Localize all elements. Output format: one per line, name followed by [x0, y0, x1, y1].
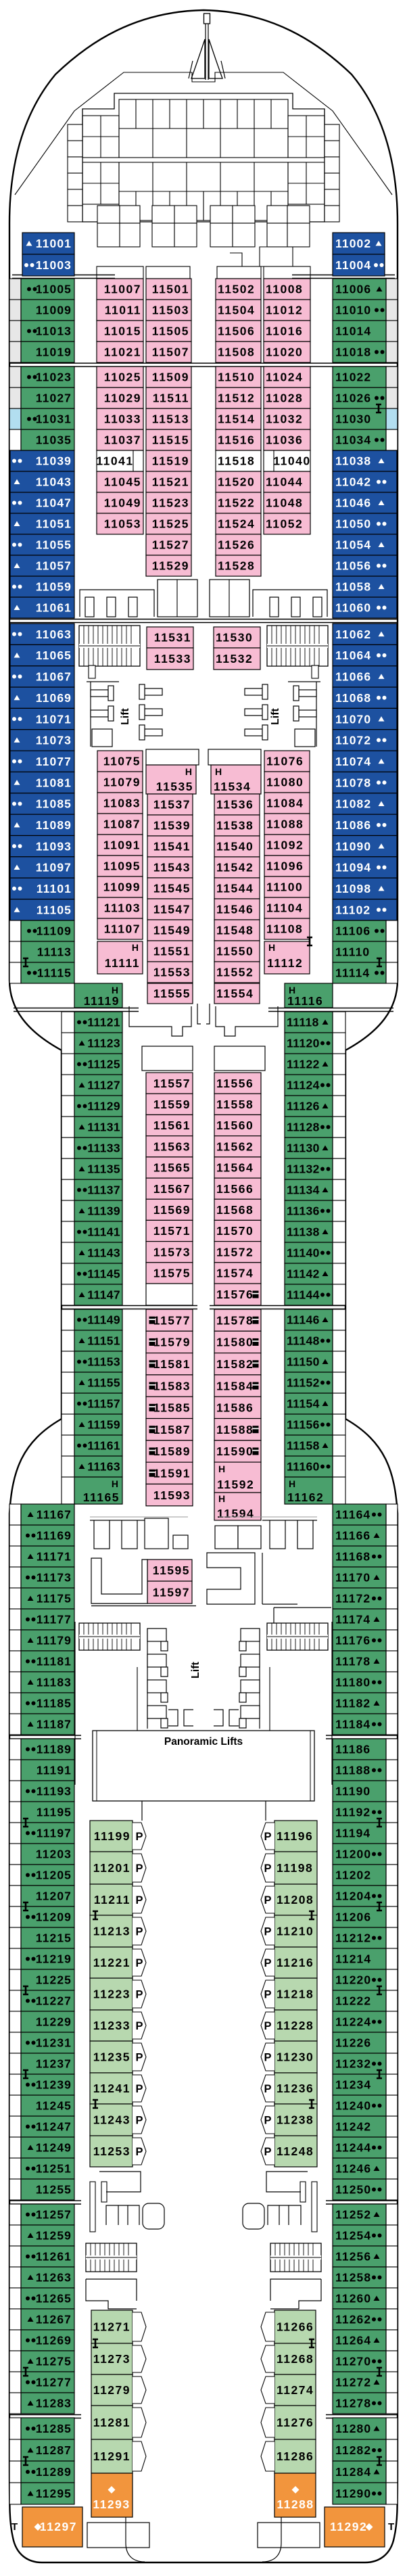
svg-text:11529: 11529 [152, 559, 189, 573]
svg-text:11115: 11115 [37, 966, 72, 980]
svg-text:11166: 11166 [335, 1529, 370, 1543]
svg-text:P: P [135, 2146, 143, 2158]
svg-text:11159: 11159 [87, 1418, 120, 1432]
svg-text:11266: 11266 [277, 2320, 314, 2334]
svg-text:11172: 11172 [335, 1592, 370, 1606]
svg-text:11565: 11565 [153, 1161, 191, 1175]
svg-text:11261: 11261 [36, 2250, 72, 2264]
svg-text:Lift: Lift [190, 1661, 201, 1679]
svg-text:11168: 11168 [335, 1550, 370, 1564]
svg-text:11216: 11216 [277, 1956, 314, 1969]
svg-text:P: P [264, 2052, 271, 2064]
svg-text:11555: 11555 [153, 987, 191, 1000]
svg-text:11594: 11594 [217, 1507, 254, 1520]
svg-text:11149: 11149 [87, 1313, 120, 1327]
svg-text:11119: 11119 [84, 994, 120, 1008]
svg-text:11186: 11186 [335, 1743, 370, 1756]
svg-text:P: P [135, 1863, 143, 1875]
svg-text:11516: 11516 [218, 434, 255, 447]
svg-text:11588: 11588 [216, 1423, 254, 1436]
svg-text:11269: 11269 [36, 2334, 72, 2347]
svg-text:11069: 11069 [36, 691, 72, 705]
svg-text:11021: 11021 [104, 346, 141, 359]
svg-text:11127: 11127 [87, 1079, 120, 1092]
svg-text:11556: 11556 [216, 1077, 254, 1090]
svg-text:11287: 11287 [36, 2443, 72, 2457]
svg-text:11563: 11563 [153, 1140, 191, 1153]
svg-text:11554: 11554 [216, 987, 254, 1000]
svg-text:11206: 11206 [335, 1911, 371, 1924]
svg-text:11559: 11559 [153, 1098, 191, 1111]
svg-text:11562: 11562 [216, 1140, 254, 1153]
svg-text:11002: 11002 [335, 237, 371, 250]
svg-text:11029: 11029 [104, 392, 141, 405]
svg-text:11121: 11121 [87, 1016, 120, 1029]
svg-text:11031: 11031 [36, 413, 72, 426]
svg-text:P: P [135, 2115, 143, 2127]
svg-text:11004: 11004 [335, 258, 371, 272]
svg-text:11084: 11084 [266, 797, 304, 810]
svg-text:11160: 11160 [287, 1460, 320, 1474]
svg-text:11026: 11026 [335, 392, 371, 405]
svg-text:11215: 11215 [36, 1931, 72, 1945]
svg-text:11007: 11007 [104, 283, 141, 296]
svg-text:11597: 11597 [153, 1586, 190, 1599]
svg-text:11558: 11558 [216, 1098, 254, 1111]
svg-text:11561: 11561 [153, 1119, 191, 1132]
svg-text:11175: 11175 [37, 1592, 72, 1606]
svg-text:11005: 11005 [36, 283, 72, 296]
svg-text:11540: 11540 [216, 840, 254, 853]
svg-text:11170: 11170 [335, 1571, 370, 1585]
svg-text:11243: 11243 [93, 2113, 130, 2127]
svg-text:11144: 11144 [287, 1288, 320, 1302]
svg-text:11265: 11265 [36, 2292, 72, 2305]
svg-text:11576: 11576 [216, 1288, 254, 1301]
svg-text:11270: 11270 [335, 2355, 371, 2368]
svg-text:11134: 11134 [287, 1184, 320, 1197]
svg-text:11074: 11074 [335, 755, 371, 768]
svg-text:11050: 11050 [335, 517, 371, 531]
svg-text:11245: 11245 [36, 2099, 72, 2113]
svg-text:11060: 11060 [335, 601, 371, 615]
svg-text:11058: 11058 [335, 580, 371, 594]
svg-text:11053: 11053 [104, 517, 141, 531]
svg-text:11010: 11010 [335, 304, 371, 317]
svg-text:11233: 11233 [93, 2019, 130, 2032]
svg-text:11578: 11578 [216, 1313, 254, 1327]
svg-text:11239: 11239 [36, 2078, 72, 2092]
svg-text:11591: 11591 [153, 1466, 191, 1480]
svg-text:11249: 11249 [36, 2141, 72, 2155]
svg-text:11221: 11221 [93, 1956, 130, 1969]
svg-text:11016: 11016 [266, 325, 303, 338]
svg-text:11009: 11009 [36, 304, 72, 317]
svg-text:11180: 11180 [335, 1676, 370, 1689]
svg-text:11514: 11514 [218, 413, 255, 426]
svg-text:11051: 11051 [36, 517, 72, 531]
svg-text:11518: 11518 [218, 454, 255, 468]
svg-text:11103: 11103 [104, 901, 141, 915]
svg-text:11006: 11006 [335, 283, 371, 296]
svg-text:11042: 11042 [335, 475, 371, 489]
svg-text:11553: 11553 [153, 966, 191, 979]
svg-text:11068: 11068 [335, 691, 371, 705]
svg-text:H: H [132, 942, 139, 953]
svg-text:11548: 11548 [216, 924, 254, 937]
svg-text:11248: 11248 [277, 2145, 314, 2158]
svg-text:11092: 11092 [266, 839, 304, 852]
svg-text:11526: 11526 [218, 538, 255, 552]
svg-text:11137: 11137 [87, 1184, 120, 1197]
svg-text:11102: 11102 [335, 903, 370, 916]
svg-text:11543: 11543 [153, 861, 191, 874]
svg-text:11531: 11531 [154, 631, 191, 645]
svg-text:11128: 11128 [287, 1121, 320, 1134]
svg-text:11130: 11130 [287, 1142, 320, 1155]
svg-text:11177: 11177 [37, 1613, 72, 1626]
svg-text:11059: 11059 [36, 580, 72, 594]
svg-text:P: P [135, 1894, 143, 1906]
svg-text:11536: 11536 [216, 798, 254, 812]
svg-text:11071: 11071 [36, 712, 72, 726]
svg-text:11282: 11282 [335, 2443, 371, 2457]
svg-text:11268: 11268 [277, 2352, 314, 2366]
svg-text:11257: 11257 [36, 2208, 72, 2222]
svg-text:11065: 11065 [36, 649, 72, 662]
svg-text:11169: 11169 [37, 1529, 72, 1543]
svg-text:11575: 11575 [153, 1267, 191, 1280]
svg-text:11512: 11512 [218, 392, 255, 405]
svg-text:11520: 11520 [218, 475, 255, 489]
svg-text:11255: 11255 [36, 2183, 72, 2197]
svg-text:11032: 11032 [266, 413, 303, 426]
svg-text:11188: 11188 [335, 1764, 370, 1777]
svg-text:11222: 11222 [335, 1994, 371, 2008]
svg-text:11150: 11150 [287, 1355, 320, 1369]
svg-text:P: P [264, 1831, 271, 1843]
svg-text:11183: 11183 [37, 1676, 72, 1689]
svg-text:11250: 11250 [335, 2183, 371, 2197]
svg-text:11200: 11200 [335, 1848, 371, 1861]
svg-text:11131: 11131 [87, 1121, 120, 1134]
svg-text:11208: 11208 [277, 1893, 314, 1906]
svg-text:H: H [218, 1463, 225, 1474]
svg-text:11044: 11044 [266, 475, 303, 489]
svg-text:11095: 11095 [103, 860, 141, 873]
svg-text:11173: 11173 [37, 1571, 72, 1585]
svg-text:11113: 11113 [37, 945, 72, 959]
svg-text:11211: 11211 [94, 1893, 130, 1906]
svg-text:11525: 11525 [152, 517, 189, 531]
svg-text:11091: 11091 [103, 839, 141, 852]
svg-text:11034: 11034 [335, 434, 371, 447]
svg-text:11275: 11275 [36, 2355, 72, 2368]
svg-text:11028: 11028 [266, 392, 303, 405]
svg-text:11571: 11571 [153, 1224, 191, 1238]
svg-text:T: T [11, 2521, 18, 2533]
svg-text:11291: 11291 [93, 2450, 130, 2463]
svg-text:H: H [112, 1478, 118, 1489]
svg-text:11193: 11193 [37, 1785, 72, 1798]
svg-text:11195: 11195 [37, 1806, 72, 1819]
svg-text:11090: 11090 [335, 839, 371, 853]
svg-text:11551: 11551 [153, 945, 191, 958]
svg-text:11267: 11267 [36, 2313, 72, 2326]
svg-text:11262: 11262 [335, 2313, 371, 2326]
svg-text:11056: 11056 [335, 559, 371, 573]
svg-text:11109: 11109 [37, 924, 72, 938]
svg-text:11047: 11047 [36, 496, 72, 510]
svg-text:11538: 11538 [216, 819, 254, 833]
svg-text:11135: 11135 [87, 1163, 120, 1176]
svg-text:11045: 11045 [104, 475, 141, 489]
svg-text:11040: 11040 [273, 454, 310, 468]
svg-text:11289: 11289 [36, 2465, 72, 2479]
svg-text:11552: 11552 [216, 966, 254, 979]
svg-text:11018: 11018 [335, 346, 371, 359]
svg-text:11030: 11030 [335, 413, 371, 426]
svg-text:11264: 11264 [335, 2334, 371, 2347]
svg-text:11158: 11158 [287, 1439, 320, 1453]
svg-text:11076: 11076 [266, 755, 304, 768]
svg-text:11020: 11020 [266, 346, 303, 359]
svg-text:11286: 11286 [277, 2450, 314, 2463]
svg-text:11148: 11148 [287, 1334, 320, 1348]
svg-text:11013: 11013 [36, 325, 72, 338]
svg-text:11075: 11075 [103, 755, 141, 768]
svg-text:P: P [135, 1926, 143, 1938]
svg-text:11278: 11278 [335, 2397, 371, 2410]
svg-text:11528: 11528 [218, 559, 255, 573]
svg-text:11189: 11189 [37, 1743, 72, 1756]
svg-text:11271: 11271 [93, 2320, 130, 2334]
svg-text:11129: 11129 [87, 1100, 120, 1113]
svg-text:11574: 11574 [216, 1267, 254, 1280]
svg-text:11501: 11501 [152, 283, 189, 296]
svg-text:11535: 11535 [156, 780, 193, 793]
svg-text:11133: 11133 [87, 1142, 120, 1155]
svg-text:11290: 11290 [335, 2487, 371, 2500]
svg-text:11213: 11213 [93, 1925, 130, 1938]
svg-text:11101: 11101 [37, 882, 72, 895]
svg-text:11504: 11504 [218, 304, 255, 317]
svg-text:11024: 11024 [266, 371, 303, 384]
svg-text:11126: 11126 [287, 1100, 320, 1113]
svg-text:11227: 11227 [36, 1994, 72, 2008]
svg-text:11515: 11515 [152, 434, 189, 447]
svg-text:11295: 11295 [36, 2487, 72, 2500]
svg-text:Lift: Lift [120, 707, 131, 725]
svg-text:11081: 11081 [36, 776, 72, 789]
svg-text:11224: 11224 [335, 2015, 371, 2029]
svg-text:11584: 11584 [216, 1379, 254, 1392]
svg-text:11147: 11147 [87, 1288, 120, 1302]
svg-text:11085: 11085 [36, 797, 72, 811]
svg-text:11038: 11038 [335, 454, 371, 468]
svg-text:11182: 11182 [335, 1697, 370, 1710]
svg-text:11036: 11036 [266, 434, 303, 447]
svg-text:H: H [289, 1478, 295, 1489]
svg-text:11118: 11118 [287, 1016, 319, 1029]
svg-text:11198: 11198 [277, 1861, 313, 1875]
svg-text:11244: 11244 [335, 2141, 371, 2155]
svg-text:11258: 11258 [335, 2271, 371, 2285]
svg-text:11120: 11120 [287, 1037, 320, 1050]
svg-text:11583: 11583 [153, 1379, 191, 1392]
svg-text:11537: 11537 [153, 798, 191, 812]
svg-text:11104: 11104 [266, 901, 303, 915]
svg-text:11293: 11293 [93, 2498, 130, 2511]
svg-text:11048: 11048 [266, 496, 303, 510]
svg-text:11022: 11022 [335, 371, 371, 384]
svg-text:11230: 11230 [277, 2051, 314, 2064]
svg-text:H: H [215, 766, 222, 777]
svg-text:11204: 11204 [335, 1890, 371, 1903]
svg-text:11011: 11011 [105, 304, 141, 317]
svg-text:11052: 11052 [266, 517, 303, 531]
svg-text:11532: 11532 [216, 652, 253, 665]
svg-text:11156: 11156 [287, 1418, 320, 1432]
svg-text:11014: 11014 [335, 325, 371, 338]
svg-text:11280: 11280 [335, 2422, 371, 2435]
svg-text:11165: 11165 [83, 1491, 120, 1504]
svg-text:11587: 11587 [153, 1423, 191, 1436]
svg-text:11523: 11523 [152, 496, 189, 510]
svg-text:11508: 11508 [218, 346, 255, 359]
svg-text:11041: 11041 [96, 454, 133, 468]
svg-text:11544: 11544 [216, 882, 254, 895]
svg-text:11066: 11066 [335, 670, 371, 684]
svg-text:11072: 11072 [335, 734, 371, 747]
svg-text:11136: 11136 [287, 1204, 320, 1218]
svg-text:11185: 11185 [37, 1697, 72, 1710]
svg-text:11225: 11225 [36, 1973, 72, 1987]
svg-text:11570: 11570 [216, 1224, 254, 1238]
svg-text:11151: 11151 [87, 1334, 120, 1348]
svg-text:11566: 11566 [216, 1182, 254, 1196]
svg-text:11513: 11513 [152, 413, 189, 426]
svg-text:11152: 11152 [287, 1376, 320, 1390]
svg-text:11194: 11194 [335, 1827, 370, 1840]
svg-text:11023: 11023 [36, 371, 72, 384]
svg-text:11138: 11138 [287, 1225, 320, 1239]
svg-text:11589: 11589 [153, 1445, 191, 1458]
svg-text:11201: 11201 [93, 1861, 130, 1875]
svg-text:11274: 11274 [277, 2383, 314, 2397]
svg-text:11178: 11178 [335, 1655, 370, 1668]
svg-text:11284: 11284 [335, 2465, 371, 2479]
svg-text:11238: 11238 [277, 2113, 314, 2127]
svg-text:11557: 11557 [153, 1077, 191, 1090]
svg-text:11272: 11272 [335, 2376, 371, 2389]
svg-text:11232: 11232 [335, 2057, 371, 2071]
svg-text:11533: 11533 [154, 652, 191, 665]
svg-text:11003: 11003 [36, 258, 72, 272]
svg-text:11212: 11212 [335, 1931, 371, 1945]
svg-text:11511: 11511 [153, 392, 189, 405]
svg-text:11033: 11033 [104, 413, 141, 426]
svg-text:11106: 11106 [335, 924, 370, 938]
svg-text:P: P [264, 2146, 271, 2158]
svg-text:11592: 11592 [217, 1478, 254, 1491]
svg-text:11521: 11521 [152, 475, 189, 489]
svg-text:11163: 11163 [87, 1460, 120, 1474]
svg-text:11143: 11143 [87, 1246, 120, 1260]
svg-text:11236: 11236 [277, 2082, 314, 2095]
svg-text:11037: 11037 [104, 434, 141, 447]
svg-text:11015: 11015 [104, 325, 141, 338]
svg-text:11242: 11242 [335, 2120, 371, 2134]
svg-text:11580: 11580 [216, 1336, 254, 1349]
svg-text:11080: 11080 [266, 776, 304, 789]
svg-text:11057: 11057 [36, 559, 72, 573]
svg-text:11542: 11542 [216, 861, 254, 874]
svg-text:11153: 11153 [87, 1355, 120, 1369]
svg-text:11176: 11176 [335, 1634, 370, 1647]
svg-text:11064: 11064 [335, 649, 371, 662]
svg-text:11577: 11577 [153, 1313, 191, 1327]
svg-text:11581: 11581 [153, 1357, 191, 1371]
svg-text:11534: 11534 [214, 780, 251, 793]
svg-text:11539: 11539 [153, 819, 191, 833]
svg-text:P: P [264, 1957, 271, 1969]
svg-text:11510: 11510 [218, 371, 255, 384]
svg-text:11585: 11585 [153, 1401, 191, 1415]
svg-text:11590: 11590 [216, 1445, 254, 1458]
svg-text:11089: 11089 [36, 818, 72, 832]
svg-text:11192: 11192 [335, 1806, 370, 1819]
svg-text:11196: 11196 [277, 1829, 313, 1843]
svg-text:11199: 11199 [94, 1829, 130, 1843]
svg-text:11273: 11273 [93, 2352, 130, 2366]
svg-text:P: P [135, 1957, 143, 1969]
svg-text:11025: 11025 [104, 371, 141, 384]
svg-text:11039: 11039 [36, 454, 72, 468]
svg-text:11111: 11111 [105, 956, 140, 970]
svg-text:11077: 11077 [36, 755, 72, 768]
svg-text:11567: 11567 [153, 1182, 191, 1196]
svg-text:11220: 11220 [335, 1973, 371, 1987]
svg-text:11530: 11530 [216, 631, 253, 645]
svg-text:11140: 11140 [287, 1246, 320, 1260]
svg-text:11218: 11218 [277, 1988, 314, 2001]
svg-text:11105: 11105 [37, 903, 72, 916]
svg-text:11260: 11260 [335, 2292, 371, 2305]
svg-text:11229: 11229 [36, 2015, 72, 2029]
svg-text:11063: 11063 [36, 628, 72, 641]
svg-text:11043: 11043 [36, 475, 72, 489]
svg-text:11519: 11519 [152, 454, 189, 468]
svg-text:11503: 11503 [152, 304, 189, 317]
svg-text:H: H [218, 1493, 225, 1504]
svg-text:11179: 11179 [37, 1634, 72, 1647]
svg-text:11096: 11096 [266, 860, 304, 873]
svg-text:11281: 11281 [93, 2416, 130, 2429]
svg-text:11254: 11254 [335, 2229, 371, 2243]
svg-text:11564: 11564 [216, 1161, 254, 1175]
svg-text:11241: 11241 [93, 2082, 130, 2095]
svg-text:11001: 11001 [36, 237, 72, 250]
svg-text:11162: 11162 [287, 1491, 324, 1504]
svg-text:11154: 11154 [287, 1397, 320, 1411]
svg-text:11235: 11235 [93, 2051, 130, 2064]
svg-text:H: H [185, 766, 192, 777]
svg-text:P: P [264, 1989, 271, 2001]
svg-text:11019: 11019 [36, 346, 72, 359]
svg-text:P: P [264, 2083, 271, 2095]
svg-text:11502: 11502 [218, 283, 255, 296]
